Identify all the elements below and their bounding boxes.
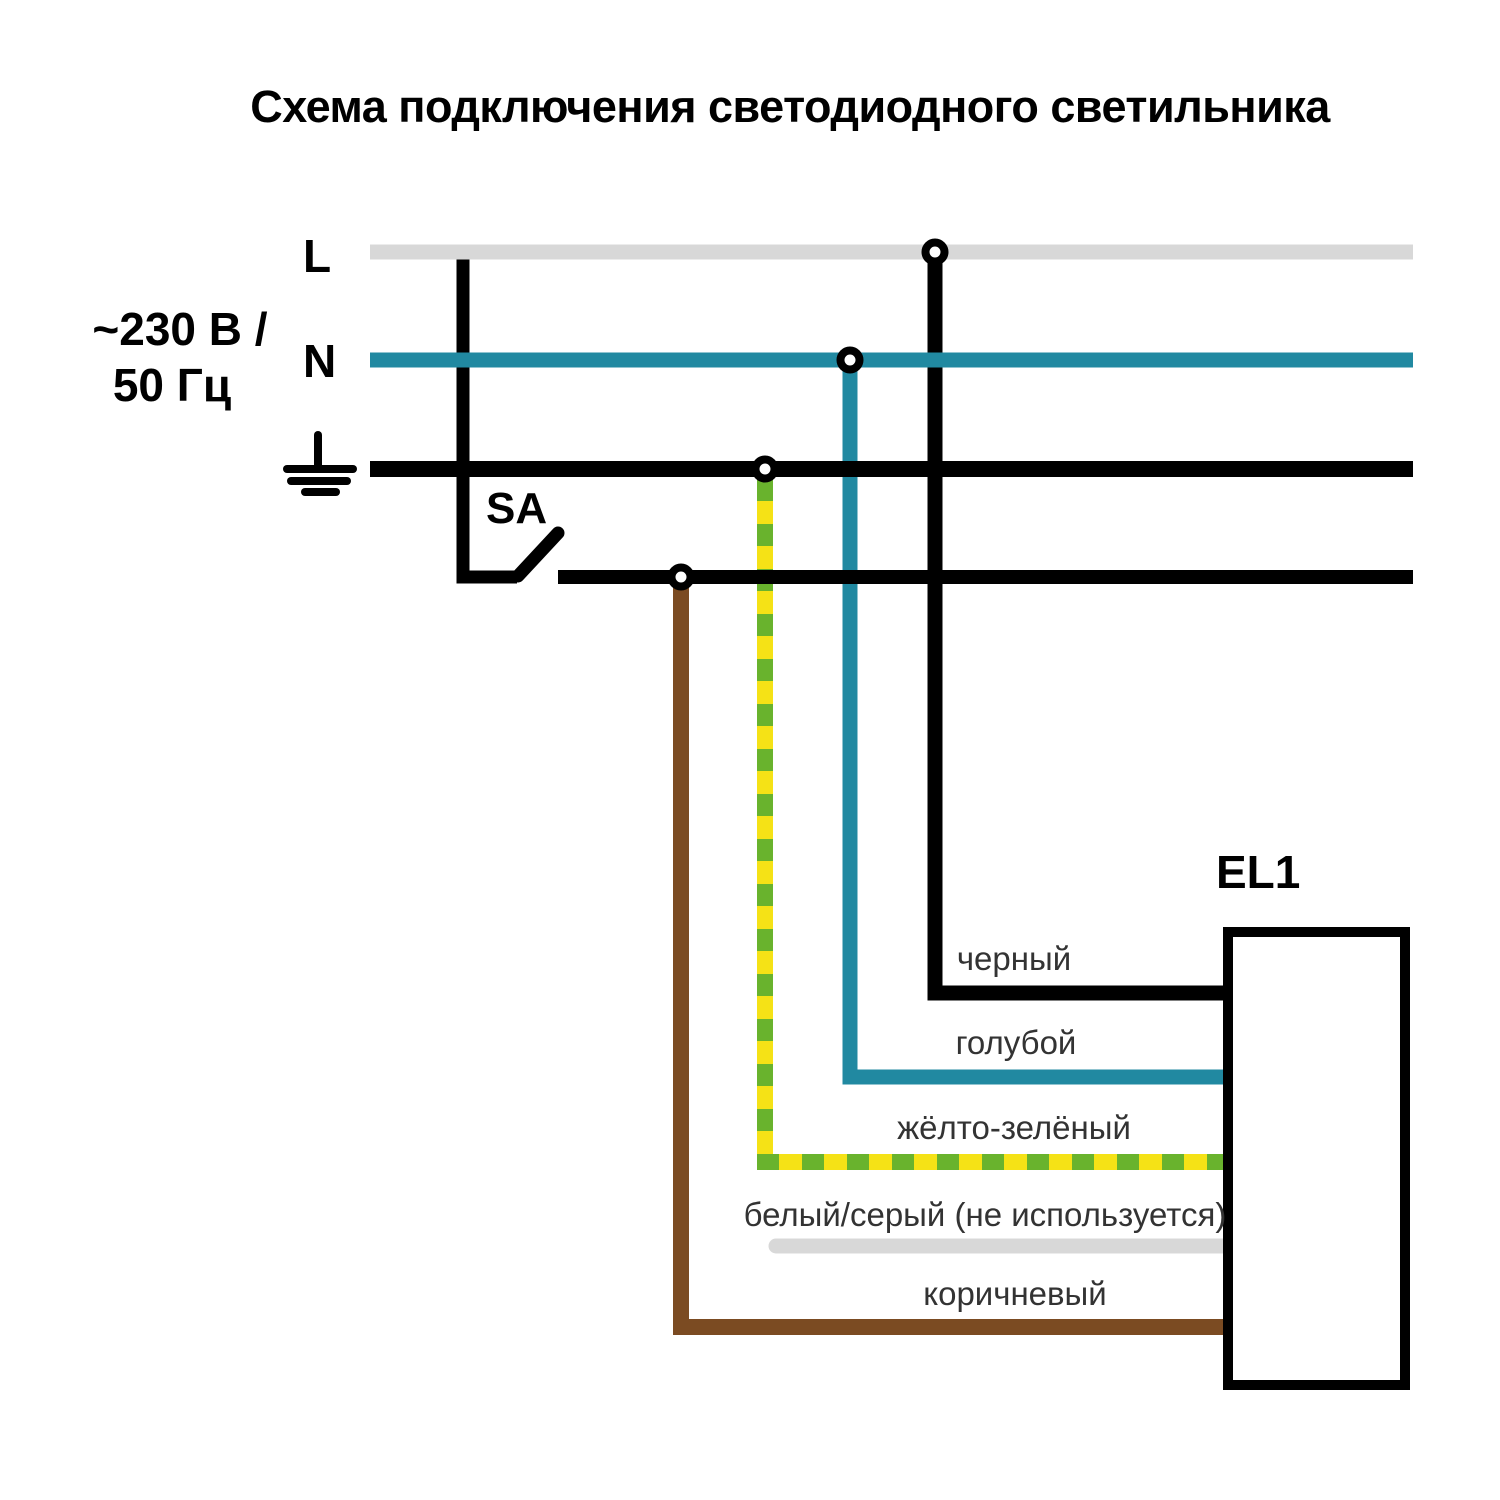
voltage-label-line2: 50 Гц xyxy=(113,359,231,411)
wire-label-black: черный xyxy=(957,940,1071,977)
ground-icon xyxy=(287,435,353,492)
wire-label-white-gray: белый/серый (не используется) xyxy=(744,1196,1227,1233)
switch-label: SA xyxy=(486,484,547,533)
luminaire-label: EL1 xyxy=(1216,846,1300,898)
junction-dot-n xyxy=(841,351,860,370)
luminaire-box xyxy=(1228,932,1405,1385)
voltage-label-line1: ~230 В / xyxy=(92,303,267,355)
wire-label-brown: коричневый xyxy=(923,1275,1106,1312)
neutral-label: N xyxy=(303,335,336,387)
junction-dot-switched xyxy=(672,568,691,587)
switch-blade xyxy=(518,533,558,576)
wire-label-yellow-green: жёлто-зелёный xyxy=(897,1109,1131,1146)
junction-dot-pe xyxy=(756,460,775,479)
diagram-title: Схема подключения светодиодного светильн… xyxy=(250,81,1331,132)
wire-label-blue: голубой xyxy=(956,1024,1077,1061)
phase-label: L xyxy=(303,230,331,282)
wiring-diagram: Схема подключения светодиодного светильн… xyxy=(0,0,1500,1500)
junction-dot-l xyxy=(926,243,945,262)
